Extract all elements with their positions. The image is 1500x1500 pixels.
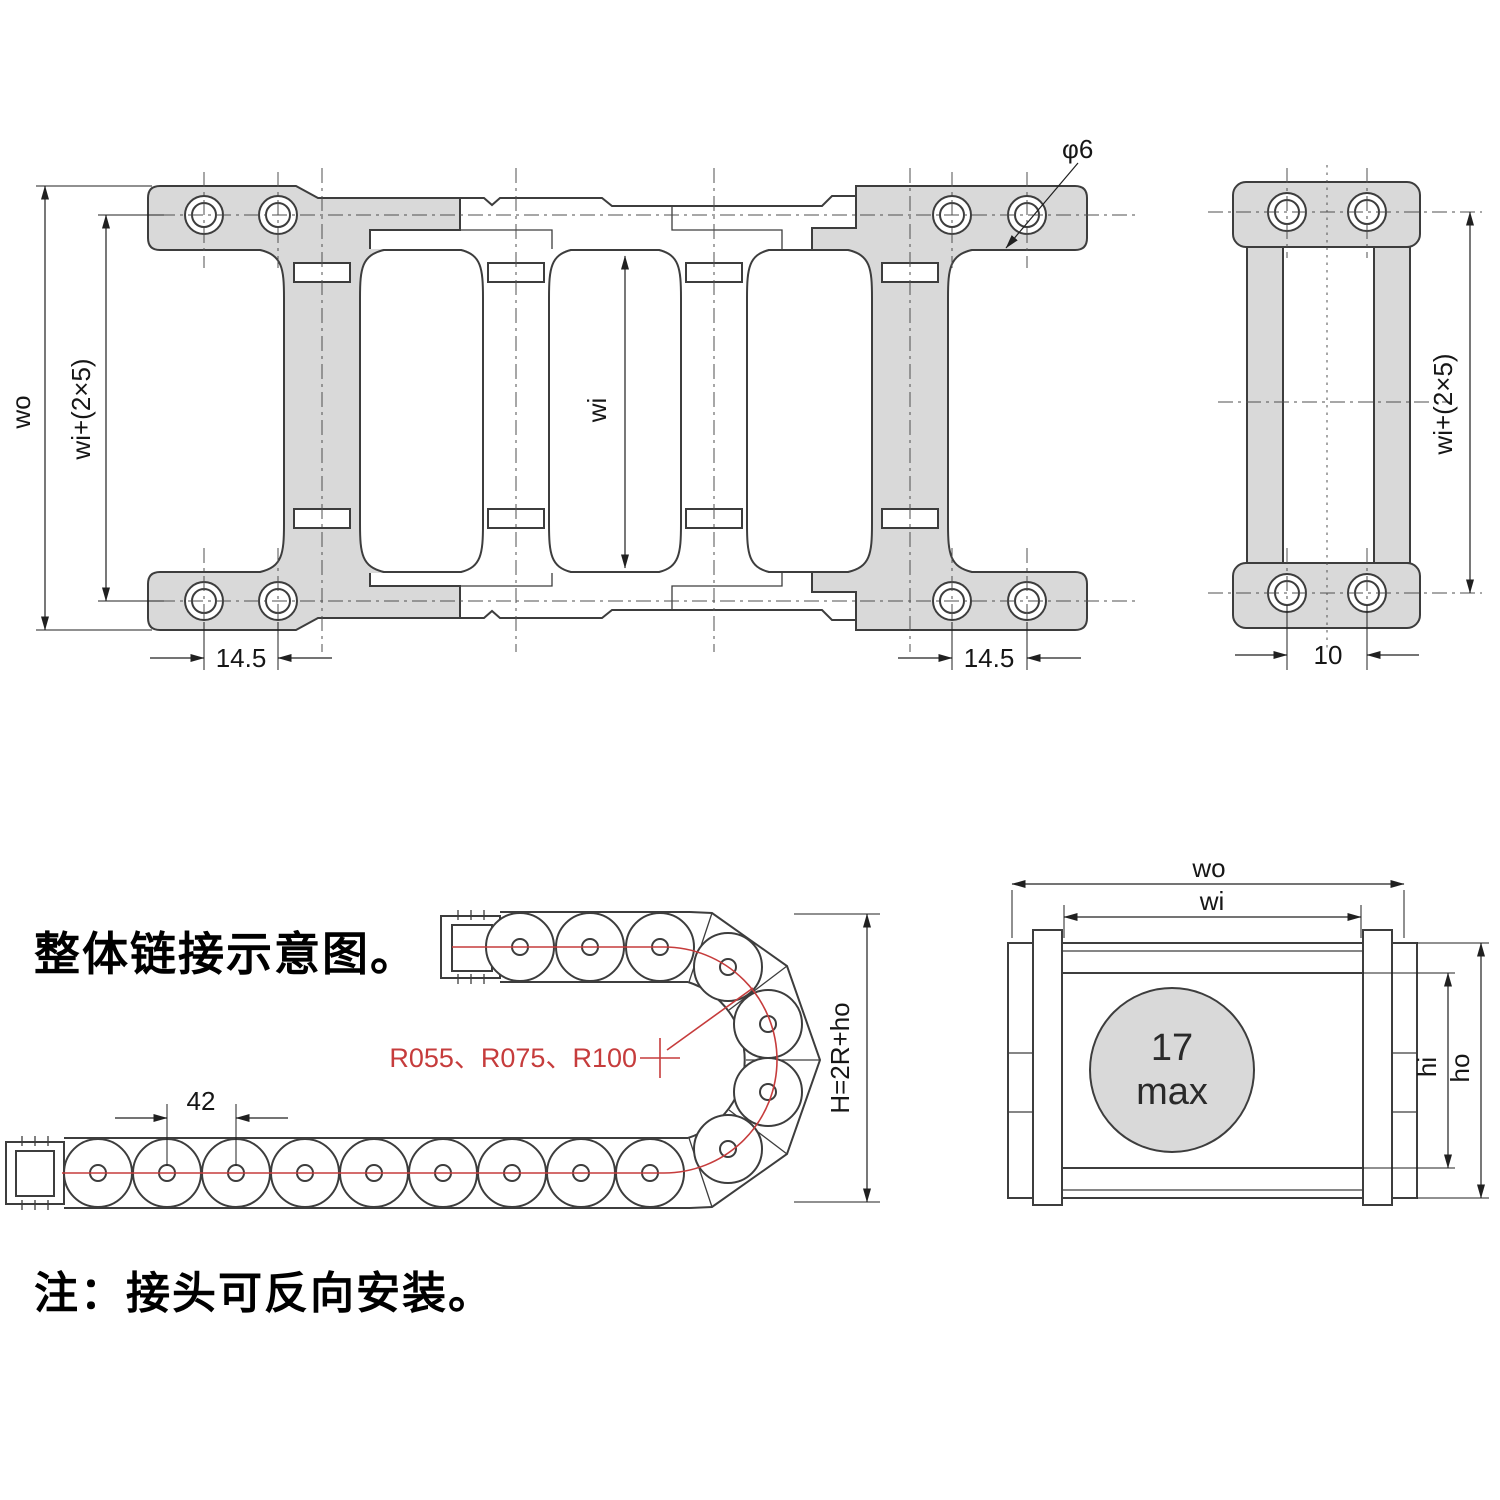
bend-radius-label: R055、R075、R100: [389, 1043, 637, 1073]
plan-bolt-span-label: wi+(2×5): [66, 358, 96, 460]
section-hi-label: hi: [1412, 1057, 1442, 1077]
cable-size-qualifier: max: [1136, 1071, 1208, 1113]
drawing-page: wo wi+(2×5) wi 14.5 14.5: [0, 0, 1500, 1500]
plan-bottom-rail-step-lines: [460, 572, 856, 620]
section-left-outer-strip: [1008, 943, 1033, 1198]
plan-crossbars: [260, 249, 972, 573]
plan-latches: [294, 263, 938, 528]
page-note: 注：接头可反向安装。: [34, 1269, 494, 1318]
side-dim-bolt-span: wi+(2×5): [1428, 212, 1470, 593]
section-ho-label: ho: [1445, 1054, 1475, 1083]
drag-chain-technical-drawing: wo wi+(2×5) wi 14.5 14.5: [0, 0, 1500, 1500]
section-dim-inner-width: wi: [1064, 886, 1361, 938]
side-top-plate: [1233, 182, 1420, 247]
plan-pitch-left-label: 14.5: [216, 643, 267, 673]
side-bolt-span-label: wi+(2×5): [1428, 353, 1458, 455]
plan-wo-label: wo: [6, 395, 36, 429]
plan-wi-label: wi: [582, 398, 612, 424]
plan-pitch-right-label: 14.5: [964, 643, 1015, 673]
plan-dim-bolt-span: wi+(2×5): [66, 215, 164, 601]
bend-height-label: H=2R+ho: [825, 1002, 855, 1113]
bend-dim-height: H=2R+ho: [794, 914, 880, 1202]
section-left-inner-strip: [1033, 930, 1062, 1205]
chain-link-roller: [694, 1115, 762, 1183]
cable-size-value: 17: [1151, 1027, 1193, 1069]
bend-bottom-connector: [6, 1136, 64, 1210]
plan-view: wo wi+(2×5) wi 14.5 14.5: [6, 134, 1135, 673]
plan-hole-diameter-label: φ6: [1062, 134, 1093, 164]
section-wo-label: wo: [1191, 853, 1225, 883]
plan-top-rail-step-lines: [460, 196, 856, 250]
page-title: 整体链接示意图。: [34, 929, 418, 980]
side-view: wi+(2×5) 10: [1208, 165, 1482, 670]
side-bar-right: [1374, 247, 1410, 563]
section-view: 17 max wo wi hi ho: [1008, 853, 1489, 1205]
bend-link-pitch-label: 42: [187, 1086, 216, 1116]
chain-link-roller: [734, 1058, 802, 1126]
cable-circle: [1090, 988, 1254, 1152]
side-hole-spacing-label: 10: [1314, 640, 1343, 670]
side-bottom-plate: [1233, 563, 1420, 628]
section-wi-label: wi: [1199, 886, 1225, 916]
chain-link-roller: [734, 990, 802, 1058]
section-right-inner-strip: [1363, 930, 1392, 1205]
side-bar-left: [1247, 247, 1283, 563]
plan-dim-inner-width: wi: [582, 256, 625, 568]
